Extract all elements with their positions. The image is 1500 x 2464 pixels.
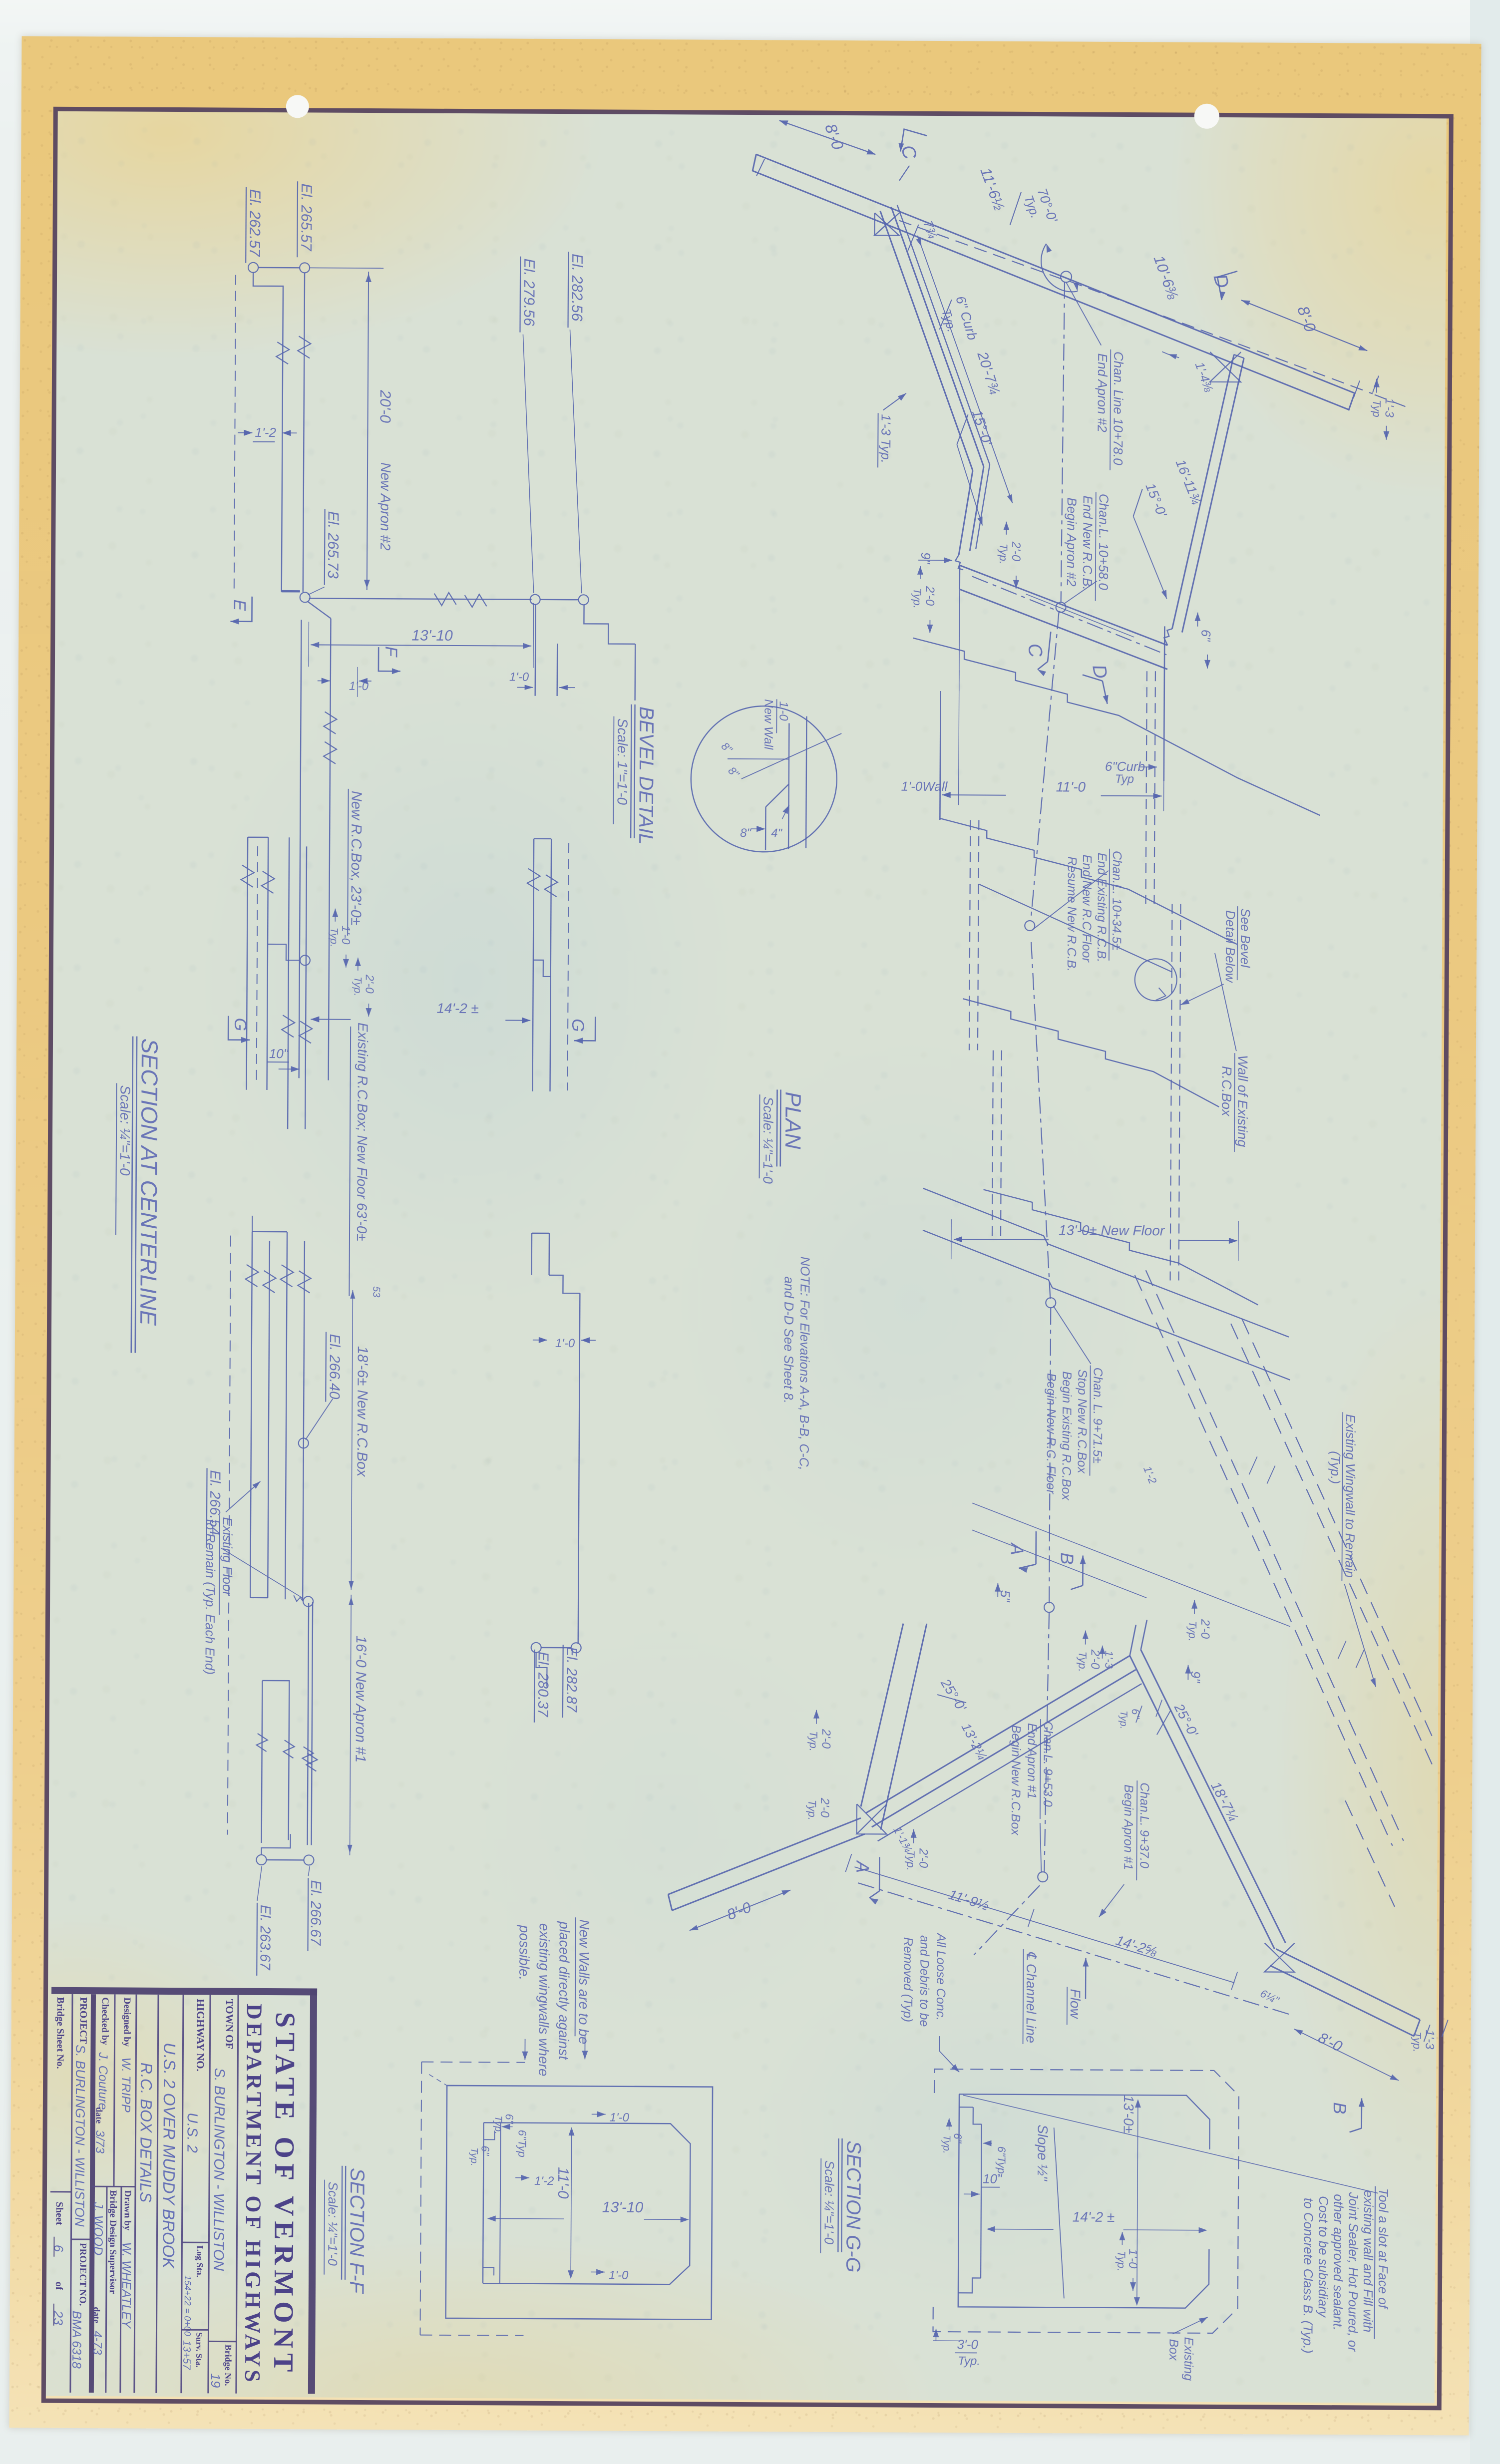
svg-text:6" Curb: 6" Curb — [953, 294, 980, 342]
svg-text:6¼": 6¼" — [1258, 1987, 1282, 2007]
svg-text:2'-0: 2'-0 — [1198, 1619, 1212, 1639]
svg-text:Begin Apron #2: Begin Apron #2 — [1064, 497, 1080, 587]
svg-text:Existing Floor: Existing Floor — [220, 1517, 235, 1597]
svg-text:placed directly against: placed directly against — [556, 1921, 572, 2060]
svg-text:Bridge Design Supervisor: Bridge Design Supervisor — [107, 2190, 118, 2294]
svg-text:10": 10" — [269, 1046, 289, 1061]
svg-text:1'-0: 1'-0 — [340, 926, 353, 945]
svg-text:El. 282.56: El. 282.56 — [569, 254, 586, 322]
svg-text:El. 266.67: El. 266.67 — [308, 1880, 324, 1946]
svg-text:Tool a slot at Face of: Tool a slot at Face of — [1376, 2188, 1391, 2310]
svg-text:J. WOOD: J. WOOD — [91, 2201, 105, 2255]
svg-text:2'-0: 2'-0 — [1088, 1649, 1102, 1670]
svg-text:2'-0: 2'-0 — [1009, 541, 1023, 562]
svg-text:5": 5" — [998, 1590, 1013, 1603]
svg-text:HIGHWAY NO.: HIGHWAY NO. — [194, 1999, 207, 2072]
svg-text:Typ.: Typ. — [1115, 2251, 1127, 2271]
svg-text:Removed (Typ): Removed (Typ) — [901, 1937, 915, 2023]
svg-text:B: B — [1330, 2102, 1350, 2114]
svg-text:DEPARTMENT OF HIGHWAYS: DEPARTMENT OF HIGHWAYS — [240, 2004, 267, 2385]
svg-text:Detail Below: Detail Below — [1223, 910, 1238, 984]
svg-text:S. BURLINGTON - WILLISTON: S. BURLINGTON - WILLISTON — [210, 2068, 227, 2271]
svg-text:See Bevel: See Bevel — [1238, 908, 1253, 968]
svg-text:1'-2: 1'-2 — [534, 2174, 554, 2188]
svg-text:possible.: possible. — [516, 1925, 532, 1981]
svg-text:11'-0: 11'-0 — [555, 2167, 571, 2199]
svg-text:New Walls are to be: New Walls are to be — [576, 1919, 592, 2044]
svg-text:1'-0: 1'-0 — [555, 1337, 575, 1350]
svg-text:C: C — [1023, 642, 1046, 659]
svg-text:G: G — [568, 1019, 587, 1032]
svg-text:4": 4" — [771, 826, 782, 840]
svg-text:Bridge Sheet No.: Bridge Sheet No. — [54, 1997, 66, 2069]
svg-text:Chan.L. 9+53.0: Chan.L. 9+53.0 — [1041, 1721, 1055, 1807]
svg-text:8'-0: 8'-0 — [725, 1899, 753, 1923]
svg-text:8": 8" — [740, 826, 751, 840]
svg-text:13'-10: 13'-10 — [602, 2199, 644, 2216]
svg-text:8'-0: 8'-0 — [1315, 2030, 1345, 2055]
svg-text:11'-6½: 11'-6½ — [977, 166, 1008, 213]
svg-text:to Concrete Class B. (Typ.): to Concrete Class B. (Typ.) — [1300, 2198, 1316, 2354]
svg-text:℄ Channel Line: ℄ Channel Line — [1024, 1951, 1039, 2043]
svg-text:Slope ½": Slope ½" — [1035, 2124, 1051, 2181]
svg-text:BEVEL DETAIL: BEVEL DETAIL — [635, 706, 657, 845]
svg-text:PROJECT NO.: PROJECT NO. — [77, 2243, 88, 2306]
svg-text:Stop New R.C.Box: Stop New R.C.Box — [1075, 1369, 1090, 1474]
svg-text:Surv. Sta.: Surv. Sta. — [194, 2332, 204, 2367]
svg-text:Typ.: Typ. — [904, 1850, 917, 1871]
svg-text:SECTION G-G: SECTION G-G — [842, 2140, 864, 2273]
svg-text:8": 8" — [719, 740, 736, 756]
svg-text:Typ.: Typ. — [807, 1731, 820, 1752]
svg-text:154+22 = 0+00: 154+22 = 0+00 — [182, 2275, 193, 2336]
svg-text:10": 10" — [983, 2171, 1003, 2186]
svg-text:U.S. 2 OVER MUDDY BROOK: U.S. 2 OVER MUDDY BROOK — [159, 2043, 179, 2269]
svg-text:Begin New R.C.Box: Begin New R.C.Box — [1009, 1725, 1023, 1836]
svg-text:G: G — [231, 1018, 250, 1032]
svg-text:to Remain (Typ. Each End): to Remain (Typ. Each End) — [202, 1519, 218, 1675]
svg-text:Typ.: Typ. — [958, 2354, 980, 2368]
svg-text:Begin Existing R.C.Box: Begin Existing R.C.Box — [1059, 1371, 1074, 1501]
svg-text:Chan.L. 9+37.0: Chan.L. 9+37.0 — [1137, 1782, 1151, 1868]
svg-text:6"Typ: 6"Typ — [516, 2130, 528, 2157]
svg-text:existing wingwalls where: existing wingwalls where — [536, 1923, 552, 2077]
svg-text:A: A — [1007, 1542, 1028, 1555]
svg-text:2'-0: 2'-0 — [819, 1729, 833, 1749]
svg-text:8'-0: 8'-0 — [821, 121, 847, 152]
svg-text:Typ: Typ — [1371, 400, 1383, 417]
svg-text:1'-3: 1'-3 — [1383, 398, 1396, 418]
svg-text:1'-2: 1'-2 — [1141, 1464, 1159, 1486]
svg-text:6": 6" — [479, 2145, 491, 2156]
svg-text:TOWN OF: TOWN OF — [223, 1999, 236, 2050]
svg-text:Chan.L. 10+58.0: Chan.L. 10+58.0 — [1096, 494, 1112, 591]
svg-text:Bridge No.: Bridge No. — [223, 2345, 233, 2386]
svg-text:SECTION AT CENTERLINE: SECTION AT CENTERLINE — [135, 1039, 163, 1327]
svg-text:10'-6⅜: 10'-6⅜ — [1150, 253, 1181, 302]
svg-text:11'-0: 11'-0 — [1056, 779, 1086, 794]
svg-text:El. 266.40: El. 266.40 — [326, 1334, 343, 1400]
svg-text:7¾: 7¾ — [920, 219, 940, 241]
svg-text:13+57: 13+57 — [181, 2340, 192, 2370]
svg-text:Typ.: Typ. — [911, 588, 924, 609]
svg-text:Chan.L. 10+34.5±: Chan.L. 10+34.5± — [1110, 851, 1124, 950]
svg-text:Chan. Line 10+78.0: Chan. Line 10+78.0 — [1111, 352, 1126, 465]
svg-text:Log Sta.: Log Sta. — [195, 2245, 205, 2277]
svg-text:13'-0±: 13'-0± — [1121, 2095, 1136, 2133]
svg-text:Begin New R.C. Floor: Begin New R.C. Floor — [1044, 1373, 1058, 1495]
svg-text:Typ.: Typ. — [806, 1800, 818, 1820]
svg-text:Wall of Existing: Wall of Existing — [1235, 1055, 1250, 1147]
svg-text:18'-7¼: 18'-7¼ — [1208, 1779, 1241, 1823]
svg-text:El. 280.37: El. 280.37 — [535, 1652, 551, 1718]
svg-text:6"Curb: 6"Curb — [1105, 759, 1145, 774]
svg-text:23: 23 — [51, 2310, 66, 2326]
svg-text:Typ.: Typ. — [328, 928, 340, 947]
svg-text:2'-0: 2'-0 — [923, 586, 937, 606]
svg-text:date: date — [94, 2107, 104, 2123]
svg-text:14'-2 ±: 14'-2 ± — [1073, 2209, 1115, 2224]
svg-text:2'-0: 2'-0 — [916, 1848, 930, 1868]
svg-text:BMA 6318: BMA 6318 — [69, 2311, 84, 2369]
svg-text:El. 282.87: El. 282.87 — [563, 1647, 580, 1713]
svg-text:Scale: ¼"=1'-0: Scale: ¼"=1'-0 — [117, 1085, 133, 1176]
svg-text:4-73: 4-73 — [90, 2331, 104, 2355]
svg-text:End Existing R.C.B.: End Existing R.C.B. — [1095, 853, 1109, 963]
svg-text:B: B — [1057, 1552, 1078, 1564]
svg-text:1'-3 Typ.: 1'-3 Typ. — [878, 414, 894, 463]
svg-text:of: of — [53, 2282, 64, 2290]
svg-text:19: 19 — [208, 2373, 223, 2388]
svg-text:Box: Box — [1166, 2339, 1180, 2361]
svg-text:18'-6± New R.C.Box: 18'-6± New R.C.Box — [354, 1346, 370, 1477]
svg-text:D: D — [1209, 272, 1233, 291]
svg-text:Typ.: Typ. — [468, 2147, 479, 2166]
svg-text:Existing R.C.Box; New Floor 63: Existing R.C.Box; New Floor 63'-0± — [354, 1023, 371, 1241]
svg-text:Drawn by: Drawn by — [122, 2190, 133, 2230]
svg-text:J. Couture: J. Couture — [96, 2052, 110, 2110]
svg-text:El. 279.56: El. 279.56 — [521, 259, 538, 327]
svg-text:13'-0± New Floor: 13'-0± New Floor — [1059, 1222, 1165, 1238]
svg-text:11'-9½: 11'-9½ — [947, 1886, 991, 1913]
svg-text:existing wall and Fill with: existing wall and Fill with — [1361, 2190, 1376, 2332]
svg-text:14'-2⅝: 14'-2⅝ — [1114, 1932, 1159, 1960]
svg-text:Typ.: Typ. — [997, 544, 1010, 564]
svg-text:Scale: ¼"=1'-0: Scale: ¼"=1'-0 — [821, 2160, 837, 2245]
svg-text:1'-2: 1'-2 — [255, 425, 276, 440]
svg-text:End New R.C.B.: End New R.C.B. — [1080, 495, 1096, 590]
svg-text:El. 265.73: El. 265.73 — [325, 511, 342, 579]
svg-text:SECTION F-F: SECTION F-F — [346, 2168, 368, 2295]
svg-text:STATE OF VERMONT: STATE OF VERMONT — [268, 2012, 301, 2377]
svg-text:Scale: ¼"=1'-0: Scale: ¼"=1'-0 — [325, 2182, 341, 2266]
svg-text:New Wall: New Wall — [761, 699, 775, 750]
svg-text:A: A — [852, 1860, 873, 1873]
svg-text:Sheet: Sheet — [54, 2202, 65, 2225]
svg-text:Typ.: Typ. — [1411, 2032, 1423, 2052]
svg-text:date: date — [92, 2307, 102, 2323]
svg-text:El. 265.57: El. 265.57 — [298, 183, 315, 252]
svg-text:6": 6" — [1198, 630, 1213, 643]
svg-text:Scale: ¼"=1'-0: Scale: ¼"=1'-0 — [760, 1096, 776, 1184]
svg-text:3/73: 3/73 — [93, 2130, 106, 2154]
svg-text:Existing: Existing — [1181, 2337, 1195, 2381]
svg-text:13'-10: 13'-10 — [411, 627, 453, 644]
svg-text:PROJECT: PROJECT — [78, 1997, 89, 2044]
svg-text:End Apron #2: End Apron #2 — [1095, 353, 1110, 433]
svg-text:and Debris to be: and Debris to be — [917, 1935, 932, 2027]
svg-text:W. WHEATLEY: W. WHEATLEY — [119, 2242, 134, 2329]
svg-text:Chan. L. 9+71.5±: Chan. L. 9+71.5± — [1091, 1368, 1105, 1463]
svg-text:NOTE: For Elevations A-A, B-: NOTE: For Elevations A-A, B-B, C-C, — [797, 1257, 813, 1470]
svg-text:(Typ.): (Typ.) — [1328, 1451, 1343, 1484]
svg-text:1'-0: 1'-0 — [509, 671, 529, 684]
svg-text:R.C. BOX DETAILS: R.C. BOX DETAILS — [137, 2063, 155, 2203]
svg-text:1'-0: 1'-0 — [776, 701, 790, 721]
svg-text:Typ.: Typ. — [1118, 1711, 1129, 1730]
svg-text:15°-0': 15°-0' — [969, 408, 995, 448]
svg-text:Typ: Typ — [1115, 772, 1134, 786]
svg-text:PLAN: PLAN — [780, 1091, 805, 1149]
svg-text:6": 6" — [503, 2113, 516, 2124]
svg-text:2'-0: 2'-0 — [818, 1797, 831, 1818]
svg-text:Typ.: Typ. — [1076, 1651, 1089, 1672]
svg-text:End Apron #1: End Apron #1 — [1025, 1723, 1039, 1799]
svg-text:W. TRIPP: W. TRIPP — [119, 2057, 133, 2112]
svg-text:25°-0': 25°-0' — [938, 1676, 969, 1715]
svg-text:R.C.Box: R.C.Box — [1219, 1066, 1234, 1117]
svg-text:El. 262.57: El. 262.57 — [246, 189, 263, 258]
svg-text:15°-0': 15°-0' — [1142, 481, 1169, 519]
svg-text:1'-4⅜: 1'-4⅜ — [1192, 360, 1216, 394]
svg-text:Cost to be subsidiary: Cost to be subsidiary — [1316, 2196, 1331, 2318]
svg-text:2'-0: 2'-0 — [364, 974, 376, 994]
svg-text:8": 8" — [726, 764, 742, 781]
svg-text:S. BURLINGTON - WILLISTON: S. BURLINGTON - WILLISTON — [72, 2045, 88, 2227]
svg-text:Scale: 1"=1'-0: Scale: 1"=1'-0 — [615, 718, 631, 805]
svg-text:6: 6 — [51, 2245, 66, 2252]
svg-text:other approved sealant.: other approved sealant. — [1331, 2194, 1346, 2330]
svg-text:All Loose Conc.: All Loose Conc. — [934, 1932, 948, 2021]
svg-text:9": 9" — [918, 552, 933, 565]
svg-text:Typ.: Typ. — [941, 2135, 952, 2154]
svg-text:1'-0Wall: 1'-0Wall — [901, 779, 948, 794]
svg-text:3'-0: 3'-0 — [957, 2337, 978, 2352]
svg-text:U.S. 2: U.S. 2 — [184, 2112, 200, 2153]
svg-text:Typ.: Typ. — [352, 977, 364, 996]
svg-text:Begin Apron #1: Begin Apron #1 — [1121, 1784, 1135, 1870]
svg-text:Joint Sealer, Hot Poured, or: Joint Sealer, Hot Poured, or — [1345, 2191, 1361, 2352]
svg-text:New Apron #2: New Apron #2 — [377, 462, 393, 551]
svg-text:Typ.: Typ. — [1186, 1621, 1199, 1642]
svg-text:Flow: Flow — [1068, 1989, 1083, 2019]
svg-text:1'-0: 1'-0 — [609, 2269, 629, 2282]
svg-text:F: F — [381, 646, 400, 658]
svg-text:16'-11¾: 16'-11¾ — [1173, 457, 1204, 507]
svg-text:E: E — [230, 600, 249, 611]
svg-text:16'-0 New Apron #1: 16'-0 New Apron #1 — [352, 1636, 369, 1763]
svg-text:Typ.: Typ. — [493, 2115, 504, 2134]
svg-text:End New R.C.Floor: End New R.C.Floor — [1080, 855, 1094, 963]
svg-text:El. 263.67: El. 263.67 — [257, 1905, 273, 1971]
svg-text:20'-7¾: 20'-7¾ — [974, 350, 1002, 396]
svg-text:Checked by: Checked by — [99, 1997, 110, 2045]
svg-text:20'-0: 20'-0 — [377, 389, 393, 423]
svg-text:New R.C.Box, 23'-0±: New R.C.Box, 23'-0± — [348, 791, 364, 926]
svg-text:and D-D See Sheet 8.: and D-D See Sheet 8. — [781, 1276, 796, 1404]
svg-text:1'-0: 1'-0 — [610, 2111, 630, 2124]
svg-text:Existing Wingwall to Remain: Existing Wingwall to Remain — [1342, 1414, 1358, 1578]
svg-text:Resume New R.C.B.: Resume New R.C.B. — [1065, 856, 1079, 972]
svg-text:6": 6" — [951, 2133, 964, 2143]
svg-text:Designed by: Designed by — [121, 1997, 132, 2047]
svg-text:14'-2 ±: 14'-2 ± — [436, 1001, 479, 1016]
svg-text:53: 53 — [371, 1286, 381, 1297]
